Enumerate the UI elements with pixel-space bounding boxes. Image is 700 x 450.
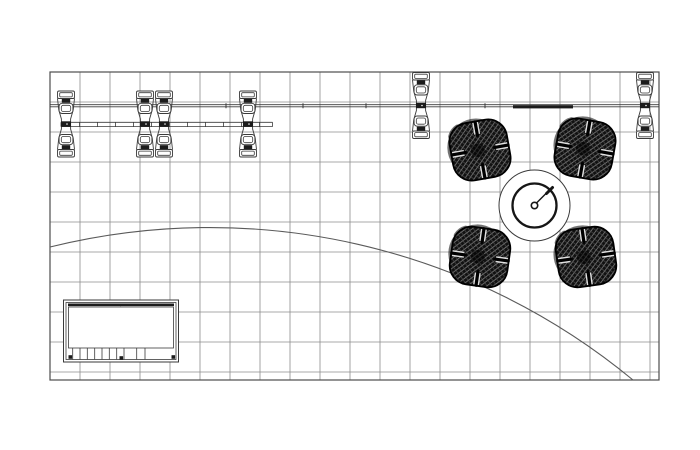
header-sign: [513, 105, 573, 108]
tub-chair: [443, 113, 514, 184]
tub-chair: [444, 221, 513, 290]
counter-foot: [120, 356, 124, 360]
upright-post: [413, 73, 430, 139]
counter-outer: [64, 300, 179, 362]
tub-chair: [548, 112, 619, 183]
round-table: [499, 170, 570, 241]
cad-viewport: [0, 0, 700, 450]
table-hub: [531, 202, 537, 208]
counter-foot: [69, 355, 73, 359]
floor-plan-drawing: [0, 0, 700, 450]
upright-post: [137, 91, 154, 157]
counter-foot: [172, 355, 176, 359]
upright-post: [637, 73, 654, 139]
upright-post: [240, 91, 257, 157]
upright-post: [58, 91, 75, 157]
reception-counter: [64, 300, 179, 362]
